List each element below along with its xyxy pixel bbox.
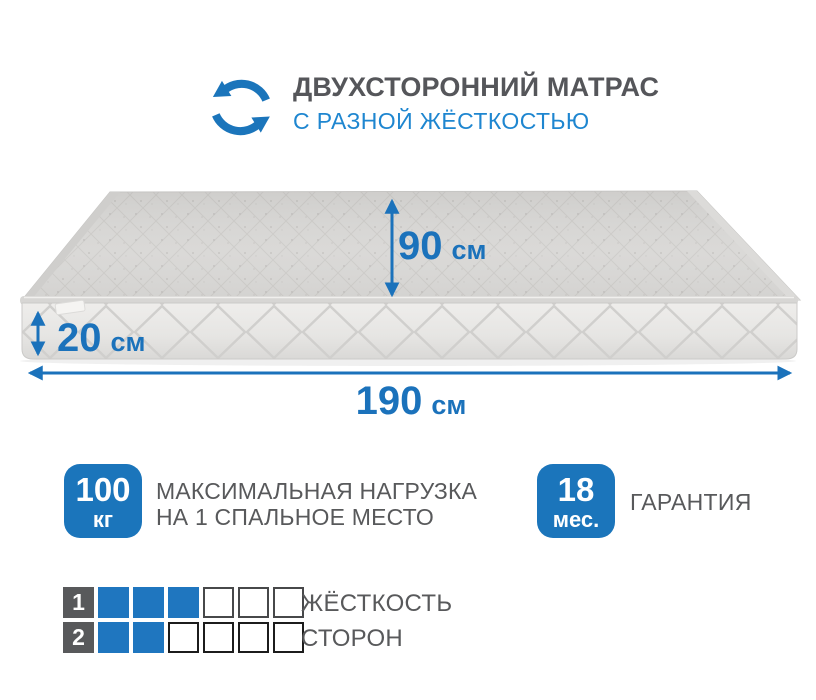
firmness-cell-empty [273,622,304,653]
depth-dimension-label: 90см [398,226,487,266]
length-dimension-label: 190см [311,381,511,421]
firmness-caption-line1: ЖЁСТКОСТЬ [301,586,452,621]
warranty-unit: мес. [537,509,615,531]
warranty-caption: ГАРАНТИЯ [630,489,752,516]
firmness-cell-empty [168,622,199,653]
height-value: 20 [57,318,102,358]
max-load-unit: кг [64,509,142,531]
firmness-caption: ЖЁСТКОСТЬ СТОРОН [301,586,452,656]
firmness-cell-empty [203,622,234,653]
mattress-illustration [0,0,816,430]
max-load-caption-line1: МАКСИМАЛЬНАЯ НАГРУЗКА [156,478,477,504]
depth-value: 90 [398,226,443,266]
firmness-side-number: 2 [63,622,94,653]
firmness-cell-filled [98,622,129,653]
infographic-page: ДВУХСТОРОННИЙ МАТРАС С РАЗНОЙ ЖЁСТКОСТЬЮ [0,0,816,700]
firmness-cell-filled [133,622,164,653]
firmness-cells [98,587,304,618]
max-load-caption-line2: НА 1 СПАЛЬНОЕ МЕСТО [156,504,477,530]
firmness-cells [98,622,304,653]
firmness-row: 1 [63,587,304,618]
warranty-badge: 18 мес. [537,464,615,538]
height-dimension-label: 20см [57,318,146,358]
max-load-badge: 100 кг [64,464,142,538]
firmness-cell-filled [133,587,164,618]
firmness-cell-empty [238,622,269,653]
firmness-cell-empty [238,587,269,618]
height-unit: см [111,327,146,358]
firmness-cell-empty [203,587,234,618]
firmness-cell-filled [98,587,129,618]
max-load-caption: МАКСИМАЛЬНАЯ НАГРУЗКА НА 1 СПАЛЬНОЕ МЕСТ… [156,478,477,530]
length-value: 190 [356,381,423,421]
firmness-cell-filled [168,587,199,618]
max-load-value: 100 [64,473,142,506]
firmness-side-number: 1 [63,587,94,618]
firmness-caption-line2: СТОРОН [301,621,452,656]
warranty-value: 18 [537,473,615,506]
depth-unit: см [452,235,487,266]
firmness-cell-empty [273,587,304,618]
length-unit: см [431,390,466,421]
firmness-row: 2 [63,622,304,653]
